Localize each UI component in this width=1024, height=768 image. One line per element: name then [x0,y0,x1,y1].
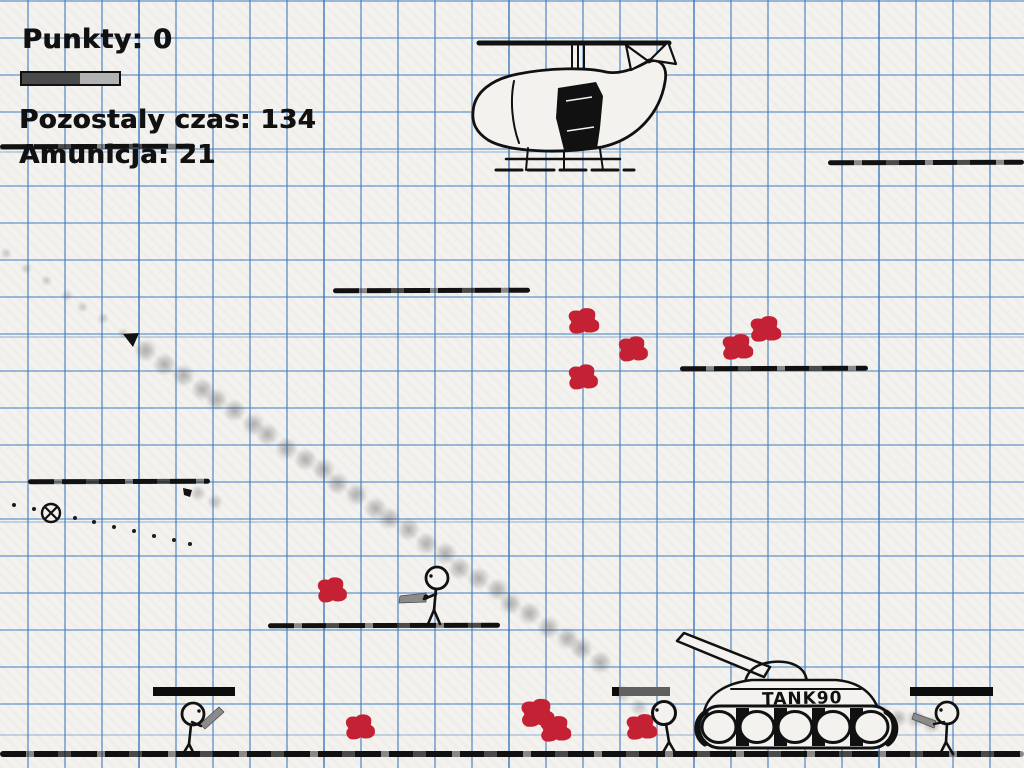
grenade-pickup-icon [42,504,60,522]
projectile [123,333,139,347]
gun-icon [912,713,936,728]
stickman-enemy-left [182,703,224,754]
stickman-eye [655,708,658,711]
tank-wheel [778,712,812,743]
stickman-head [653,702,676,725]
gun-icon [399,593,426,603]
game-scene[interactable]: TANK90 [0,0,1024,768]
stickman-eye [197,709,200,712]
tank-wheel [816,712,850,743]
tank-cannon [677,633,770,677]
tank-wheel [740,712,774,743]
tank-wheel [854,712,888,743]
stickman-head [426,567,448,589]
tank-wheel [702,712,736,743]
debris-mark [183,488,192,497]
stickman-enemy-right [912,702,958,754]
stickman-head [936,702,958,724]
helicopter-sprite [473,42,676,170]
tank-sprite: TANK90 [677,633,896,748]
stickman-player [399,567,448,624]
stickman-enemy-center [653,702,677,755]
stickman-eye [939,708,942,711]
helicopter-door [556,82,603,150]
stickman-eye [429,574,432,577]
sprite-layer: TANK90 [0,0,1024,768]
